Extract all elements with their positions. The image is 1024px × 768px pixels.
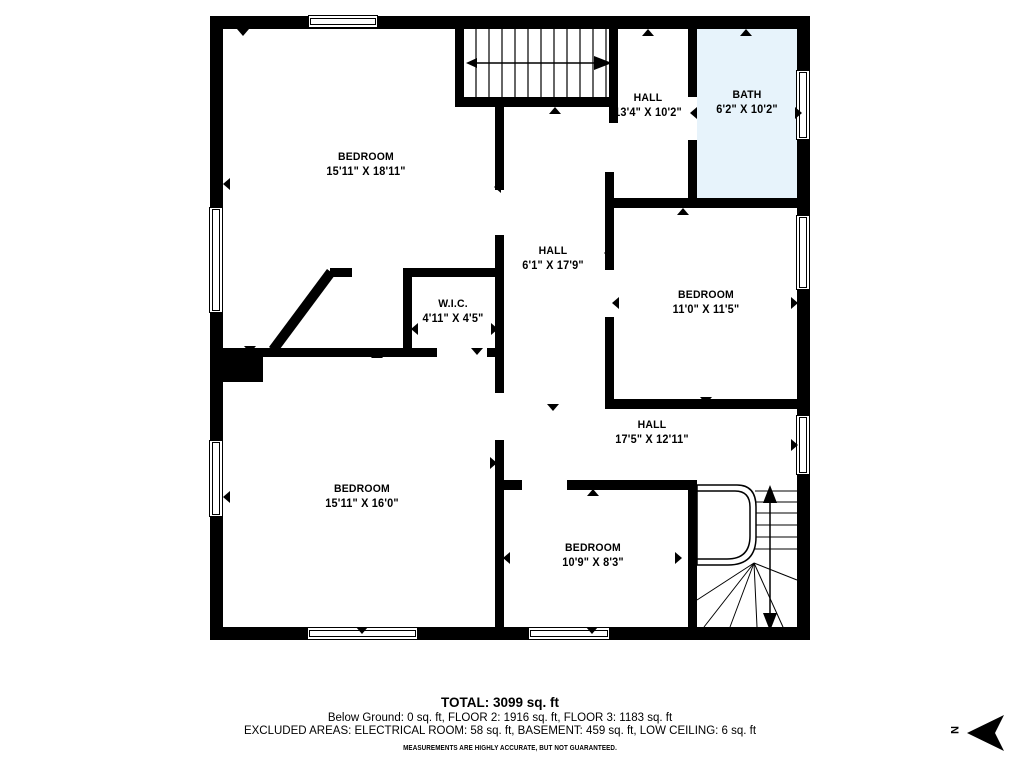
wall-bedroom2-bottom xyxy=(605,399,810,409)
floor-areas-text: Below Ground: 0 sq. ft, FLOOR 2: 1916 sq… xyxy=(0,712,1000,724)
wall-bedroom5-top-left xyxy=(495,480,522,490)
wall-hallbath-bottom xyxy=(605,198,810,208)
wall-outer-top xyxy=(210,16,810,29)
wall-mid-horizontal-right xyxy=(487,348,504,357)
window-bottom-left xyxy=(307,627,418,640)
wall-stair-bottom xyxy=(455,97,616,107)
wall-central-upper xyxy=(495,97,504,190)
wall-hall-divider-mid xyxy=(605,172,614,270)
wall-wic-left xyxy=(403,268,412,357)
stair-railing-outer xyxy=(697,485,756,565)
stairs-lower-direction-arrow xyxy=(763,485,777,631)
wall-outer-left xyxy=(210,16,223,640)
stair-railing-inner xyxy=(697,491,750,559)
room-label-bedroom-east: BEDROOM11'0" X 11'5" xyxy=(673,288,740,318)
wall-bedroom5-top-right xyxy=(567,480,690,490)
window-top xyxy=(308,15,378,28)
room-label-hall-center: HALL6'1" X 17'9" xyxy=(522,244,584,274)
wall-closet-stub xyxy=(330,268,352,277)
total-area-text: TOTAL: 3099 sq. ft xyxy=(0,695,1000,710)
wall-bath-left-lower xyxy=(688,140,697,203)
compass-north-label: N xyxy=(948,726,960,734)
compass: N xyxy=(946,706,1016,758)
wall-stair-left xyxy=(455,29,464,107)
chimney-block xyxy=(218,348,263,382)
room-label-bath: BATH6'2" X 10'2" xyxy=(716,88,778,118)
room-label-wic: W.I.C.4'11" X 4'5" xyxy=(423,297,484,327)
plan-linework xyxy=(0,0,1024,768)
stairs-upper xyxy=(476,29,606,97)
room-label-hall-lower: HALL17'5" X 12'11" xyxy=(615,418,689,448)
wall-diagonal xyxy=(273,272,331,350)
room-label-bedroom-south: BEDROOM10'9" X 8'3" xyxy=(562,541,624,571)
stairs-lower xyxy=(697,485,797,631)
wall-stairwell-left xyxy=(688,480,697,628)
room-label-bedroom-nw: BEDROOM15'11" X 18'11" xyxy=(326,150,405,180)
window-right-bath xyxy=(796,70,810,140)
wall-outer-bottom xyxy=(210,627,810,640)
window-left-lower xyxy=(209,440,223,517)
disclaimer-text: MEASUREMENTS ARE HIGHLY ACCURATE, BUT NO… xyxy=(51,745,969,752)
room-label-hall-upper: HALL13'4" X 10'2" xyxy=(614,91,682,121)
wall-hall-divider-low xyxy=(605,317,614,409)
excluded-areas-text: EXCLUDED AREAS: ELECTRICAL ROOM: 58 sq. … xyxy=(0,725,1000,737)
floor-plan: BEDROOM15'11" X 18'11" HALL13'4" X 10'2"… xyxy=(0,0,1024,768)
room-label-bedroom-sw: BEDROOM15'11" X 16'0" xyxy=(325,482,399,512)
wall-wic-top xyxy=(403,268,504,277)
window-right-hall xyxy=(796,415,810,475)
window-right-bedroom xyxy=(796,215,810,290)
wall-bath-left-upper xyxy=(688,16,697,97)
wall-central-lower xyxy=(495,440,504,640)
window-left-upper xyxy=(209,207,223,313)
stairs-upper-direction-arrow xyxy=(466,56,612,70)
window-bottom-mid xyxy=(528,627,610,640)
wall-central-mid xyxy=(495,235,504,393)
